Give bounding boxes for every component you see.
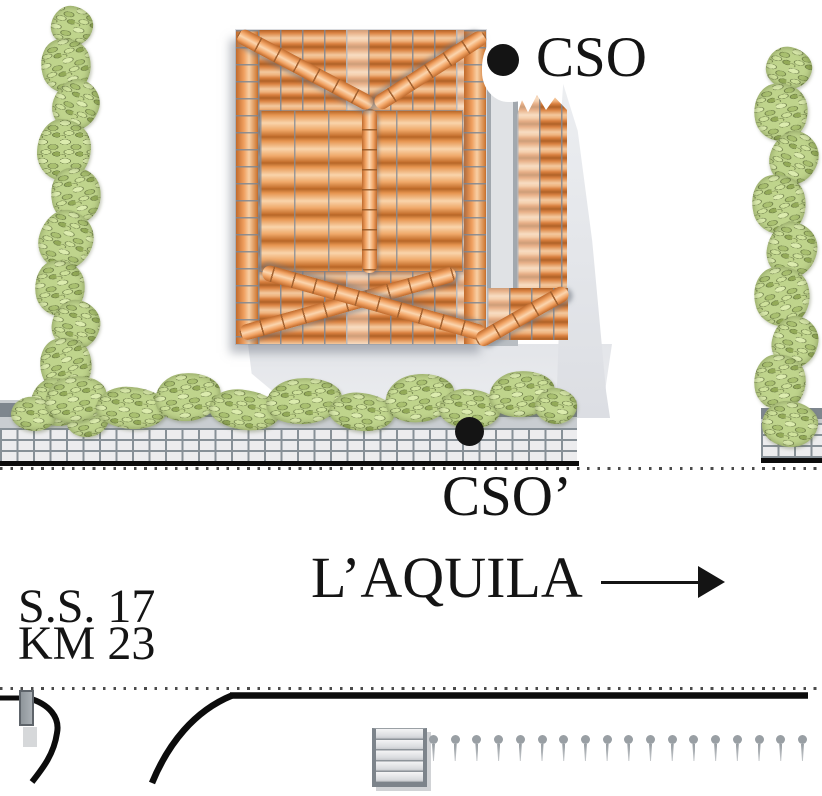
delineator-pin bbox=[581, 735, 590, 763]
pin-stem bbox=[627, 744, 630, 761]
pin-stem bbox=[801, 744, 804, 761]
hedge-foliage-blob bbox=[32, 204, 100, 276]
delineator-pin bbox=[472, 735, 481, 763]
pin-stem bbox=[758, 744, 761, 761]
pin-head-icon bbox=[733, 735, 742, 744]
hedge-foliage-blob bbox=[31, 257, 88, 319]
pin-stem bbox=[454, 744, 457, 761]
pin-head-icon bbox=[516, 735, 525, 744]
roof-ridge-vertical bbox=[362, 109, 377, 273]
pin-stem bbox=[671, 744, 674, 761]
pin-stem bbox=[475, 744, 478, 761]
hedge-foliage-blob bbox=[47, 296, 104, 355]
pin-head-icon bbox=[581, 735, 590, 744]
hedge-foliage-blob bbox=[763, 125, 822, 191]
delineator-pin bbox=[451, 735, 460, 763]
hedge-foliage-blob bbox=[763, 218, 822, 282]
steps-grate-structure bbox=[372, 728, 427, 787]
delineator-pin bbox=[624, 735, 633, 763]
delineator-pin-row bbox=[429, 735, 807, 763]
pin-stem bbox=[736, 744, 739, 761]
hedge-foliage-blob bbox=[750, 351, 809, 414]
retaining-wall-right bbox=[761, 408, 822, 423]
route-label-line2: KM 23 bbox=[18, 625, 155, 662]
driveway-curve-right bbox=[152, 696, 232, 784]
delineator-pin bbox=[538, 735, 547, 763]
pin-stem bbox=[432, 744, 435, 761]
roof-raised-center bbox=[260, 111, 462, 271]
hedge-foliage-blob bbox=[35, 32, 98, 98]
hedge-foliage-blob bbox=[33, 330, 100, 399]
site-plan: CSO CSO’ L’AQUILA S.S. 17 KM 23 bbox=[0, 0, 822, 796]
pin-head-icon bbox=[646, 735, 655, 744]
hedge-foliage-blob bbox=[45, 73, 106, 138]
hedge-foliage-blob bbox=[37, 119, 91, 181]
pin-head-icon bbox=[755, 735, 764, 744]
delineator-pin bbox=[646, 735, 655, 763]
destination-label: L’AQUILA bbox=[311, 549, 583, 607]
hedge-foliage-blob bbox=[746, 168, 813, 239]
pin-stem bbox=[519, 744, 522, 761]
pin-head-icon bbox=[451, 735, 460, 744]
delineator-pin bbox=[516, 735, 525, 763]
pin-stem bbox=[562, 744, 565, 761]
pin-stem bbox=[584, 744, 587, 761]
delineator-pin bbox=[711, 735, 720, 763]
pin-stem bbox=[714, 744, 717, 761]
delineator-pin bbox=[668, 735, 677, 763]
pin-head-icon bbox=[472, 735, 481, 744]
route-label: S.S. 17 KM 23 bbox=[18, 588, 155, 662]
sidewalk-right bbox=[761, 423, 822, 458]
delineator-pin bbox=[733, 735, 742, 763]
pin-stem bbox=[649, 744, 652, 761]
delineator-pin bbox=[689, 735, 698, 763]
delineator-pin bbox=[776, 735, 785, 763]
hedge-foliage-blob bbox=[767, 312, 822, 372]
pin-head-icon bbox=[776, 735, 785, 744]
hedge-foliage-blob bbox=[48, 3, 96, 50]
hedge-foliage-blob bbox=[747, 259, 817, 332]
roof-eave-left bbox=[236, 30, 258, 344]
hedge-foliage-blob bbox=[46, 162, 107, 227]
pin-stem bbox=[779, 744, 782, 761]
pin-stem bbox=[692, 744, 695, 761]
delineator-pin bbox=[755, 735, 764, 763]
pin-head-icon bbox=[624, 735, 633, 744]
delineator-pin bbox=[429, 735, 438, 763]
curb-line-right bbox=[761, 458, 822, 463]
roadside-post bbox=[19, 690, 34, 726]
delineator-pin bbox=[798, 735, 807, 763]
delineator-pin bbox=[494, 735, 503, 763]
hedge-foliage-blob bbox=[762, 43, 816, 94]
delineator-pin bbox=[603, 735, 612, 763]
delineator-pin bbox=[559, 735, 568, 763]
pin-head-icon bbox=[798, 735, 807, 744]
pin-head-icon bbox=[668, 735, 677, 744]
pin-stem bbox=[541, 744, 544, 761]
pin-stem bbox=[497, 744, 500, 761]
roadside-post-shadow bbox=[23, 727, 37, 747]
boundary-dotted-line-upper bbox=[0, 467, 822, 470]
pin-head-icon bbox=[559, 735, 568, 744]
direction-arrow-shaft bbox=[601, 581, 701, 584]
cso-label: CSO bbox=[536, 29, 647, 86]
pin-head-icon bbox=[603, 735, 612, 744]
sidewalk-left bbox=[0, 428, 577, 462]
pin-head-icon bbox=[494, 735, 503, 744]
pin-head-icon bbox=[689, 735, 698, 744]
hedge-foliage-blob bbox=[749, 79, 812, 145]
pin-stem bbox=[606, 744, 609, 761]
cso-marker-icon bbox=[487, 44, 519, 76]
pin-head-icon bbox=[711, 735, 720, 744]
pin-head-icon bbox=[538, 735, 547, 744]
direction-arrow-icon bbox=[698, 566, 725, 598]
cso-prime-label: CSO’ bbox=[442, 468, 572, 525]
pin-head-icon bbox=[429, 735, 438, 744]
cso-prime-marker-icon bbox=[455, 417, 484, 446]
retaining-wall-left bbox=[0, 400, 577, 428]
